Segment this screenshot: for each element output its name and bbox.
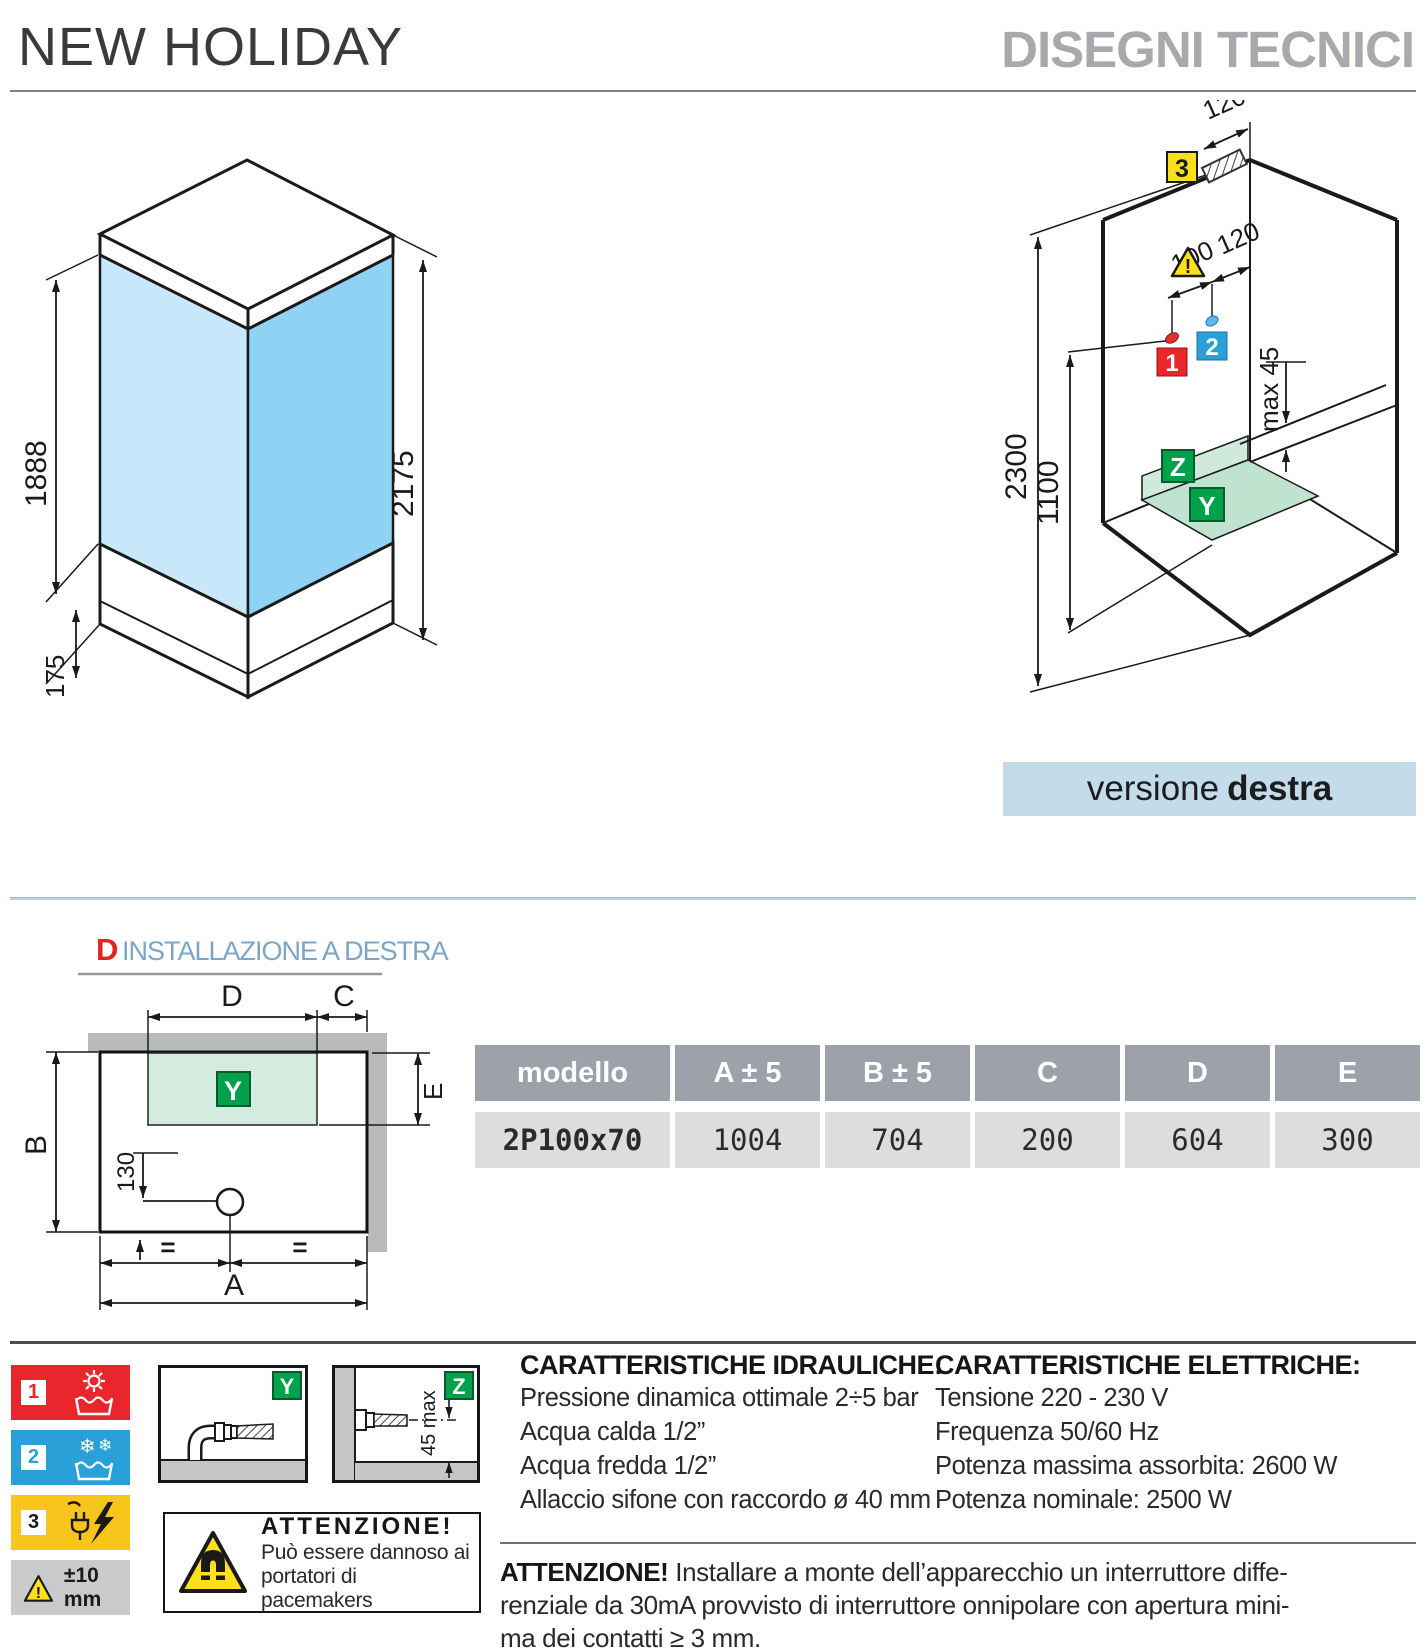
plan-installation-drawing: D INSTALLAZIONE A DESTRA Y D C B xyxy=(10,920,470,1320)
detail-box-y: Y xyxy=(158,1365,308,1483)
label-z-badge: Z xyxy=(1162,450,1194,482)
table-header-e: E xyxy=(1275,1045,1420,1101)
plan-dim-130: 130 xyxy=(113,1152,140,1192)
version-caption-bold: destra xyxy=(1227,769,1332,809)
plan-dim-b: B xyxy=(20,1135,53,1155)
electric-line-frequency: Frequenza 50/60 Hz xyxy=(935,1415,1365,1449)
version-caption-normal: versione xyxy=(1087,769,1219,809)
hydraulic-line-pressure: Pressione dinamica ottimale 2÷5 bar xyxy=(520,1381,950,1415)
detail-z-dim: 45 max xyxy=(418,1390,440,1456)
plan-title-text: INSTALLAZIONE A DESTRA xyxy=(122,936,449,966)
svg-text:1: 1 xyxy=(1165,350,1178,377)
plan-eq-left: = xyxy=(160,1232,175,1262)
dim-tray-height: 175 xyxy=(40,655,70,698)
isometric-cabin-drawing: 1888 175 2175 xyxy=(20,112,470,762)
sun-water-icon xyxy=(46,1368,124,1418)
svg-text:Y: Y xyxy=(280,1374,295,1399)
cell-model: 2P100x70 xyxy=(475,1112,670,1168)
axonometric-installation-drawing: max 45 2300 1100 100 120 120 ! 1 xyxy=(950,100,1426,760)
svg-text:!: ! xyxy=(1185,256,1192,278)
drain-hole xyxy=(217,1189,243,1215)
pacemaker-warning-line1: Può essere dannoso ai xyxy=(261,1541,473,1565)
tolerance-value: ±10 mm xyxy=(64,1564,130,1612)
legend-tolerance: ! ±10 mm xyxy=(11,1560,130,1615)
svg-text:❄: ❄ xyxy=(79,1436,96,1458)
hydraulic-line-cold: Acqua fredda 1/2” xyxy=(520,1449,950,1483)
table-header-modello: modello xyxy=(475,1045,670,1101)
hydraulic-characteristics: CARATTERISTICHE IDRAULICHE: Pressione di… xyxy=(520,1350,950,1517)
wall-connection-drawing: 45 max Z xyxy=(335,1368,477,1480)
electric-line-nominal-power: Potenza nominale: 2500 W xyxy=(935,1483,1365,1517)
table-header-d: D xyxy=(1125,1045,1270,1101)
plan-dim-c: C xyxy=(333,980,355,1013)
electrical-point-symbol xyxy=(1202,150,1247,183)
svg-text:Z: Z xyxy=(1170,452,1186,482)
electric-line-voltage: Tensione 220 - 230 V xyxy=(935,1381,1365,1415)
label-1-badge: 1 xyxy=(1157,348,1187,377)
dim-ledge-max45: max 45 xyxy=(1254,347,1284,432)
svg-text:Y: Y xyxy=(224,1076,242,1106)
cell-a: 1004 xyxy=(675,1112,820,1168)
breaker-warning-paragraph: ATTENZIONE! Installare a monte dell’appa… xyxy=(500,1556,1418,1650)
magnet-warning-icon xyxy=(175,1528,251,1598)
electric-characteristics: CARATTERISTICHE ELETTRICHE: Tensione 220… xyxy=(935,1350,1365,1517)
plan-wall-top xyxy=(88,1033,387,1052)
pacemaker-warning-title: ATTENZIONE! xyxy=(261,1513,473,1541)
legend-cold-water: 2 ❄ ❄ xyxy=(11,1430,130,1485)
cold-water-point xyxy=(1204,314,1220,328)
tolerance-warning-icon: ! xyxy=(19,1566,58,1610)
dim-mixer-1100: 1100 xyxy=(1032,460,1065,525)
svg-text:Z: Z xyxy=(452,1374,465,1399)
table-header-row: modello A ± 5 B ± 5 C D E xyxy=(475,1045,1420,1101)
cell-b: 704 xyxy=(825,1112,970,1168)
plan-dim-a: A xyxy=(224,1269,244,1302)
dim-glass-height: 1888 xyxy=(20,440,53,507)
dim-total-height: 2175 xyxy=(387,450,420,517)
plan-title-letter: D xyxy=(96,932,118,967)
cabin-floor-edges xyxy=(1103,523,1397,635)
table-header-c: C xyxy=(975,1045,1120,1101)
plan-dim-e: E xyxy=(418,1083,448,1100)
electric-title: CARATTERISTICHE ELETTRICHE: xyxy=(935,1350,1365,1381)
version-caption: versione destra xyxy=(1003,762,1416,816)
electric-line-max-power: Potenza massima assorbita: 2600 W xyxy=(935,1449,1365,1483)
pacemaker-warning-line2: portatori di pacemakers xyxy=(261,1565,473,1613)
product-title: NEW HOLIDAY xyxy=(18,16,403,78)
detail-box-z: 45 max Z xyxy=(332,1365,480,1483)
plan-wall-right xyxy=(368,1033,387,1252)
svg-text:2: 2 xyxy=(1205,334,1218,361)
legend-electric: 3 xyxy=(11,1495,130,1550)
svg-text:!: ! xyxy=(36,1584,41,1602)
plan-dim-d: D xyxy=(221,980,243,1013)
breaker-warning-label: ATTENZIONE! xyxy=(500,1557,668,1587)
cell-c: 200 xyxy=(975,1112,1120,1168)
dim-top-120: 120 xyxy=(1198,100,1250,125)
section-divider-blue xyxy=(10,897,1416,900)
plug-lightning-icon xyxy=(46,1498,124,1548)
floor-drain-connection-drawing: Y xyxy=(161,1368,305,1480)
label-y-badge: Y xyxy=(1190,488,1224,521)
legend-3-number: 3 xyxy=(21,1510,46,1535)
table-header-b: B ± 5 xyxy=(825,1045,970,1101)
cell-d: 604 xyxy=(1125,1112,1270,1168)
table-header-a: A ± 5 xyxy=(675,1045,820,1101)
table-row: 2P100x70 1004 704 200 604 300 xyxy=(475,1112,1420,1168)
warning-rule xyxy=(500,1542,1416,1544)
technical-sheet-page: NEW HOLIDAY DISEGNI TECNICI 1888 175 2 xyxy=(0,0,1426,1650)
hydraulic-line-hot: Acqua calda 1/2” xyxy=(520,1415,950,1449)
label-3-badge: 3 xyxy=(1167,152,1197,183)
legend-hot-water: 1 xyxy=(11,1365,130,1420)
plan-label-y-badge: Y xyxy=(217,1072,250,1106)
detail-y-badge: Y xyxy=(273,1372,301,1399)
page-subtitle: DISEGNI TECNICI xyxy=(1001,20,1414,79)
hydraulic-title: CARATTERISTICHE IDRAULICHE: xyxy=(520,1350,950,1381)
dimensions-table: modello A ± 5 B ± 5 C D E 2P100x70 1004 … xyxy=(475,1045,1420,1168)
svg-text:❄: ❄ xyxy=(98,1436,112,1455)
header-rule xyxy=(10,90,1416,92)
snowflakes-water-icon: ❄ ❄ xyxy=(46,1433,124,1483)
svg-text:Y: Y xyxy=(1198,491,1215,521)
legend-2-number: 2 xyxy=(21,1445,46,1470)
label-2-badge: 2 xyxy=(1197,332,1227,361)
legend-1-number: 1 xyxy=(21,1380,46,1405)
plan-eq-right: = xyxy=(292,1232,307,1262)
cell-e: 300 xyxy=(1275,1112,1420,1168)
dim-height-2300: 2300 xyxy=(1000,433,1033,500)
dim-cold-120: 120 xyxy=(1212,215,1264,260)
hot-water-point xyxy=(1164,331,1181,346)
hydraulic-line-siphon: Allaccio sifone con raccordo ø 40 mm xyxy=(520,1483,950,1517)
svg-text:3: 3 xyxy=(1175,155,1189,183)
section-divider-dark xyxy=(10,1341,1416,1344)
pacemaker-warning-box: ATTENZIONE! Può essere dannoso ai portat… xyxy=(163,1512,481,1613)
detail-z-badge: Z xyxy=(445,1372,473,1399)
